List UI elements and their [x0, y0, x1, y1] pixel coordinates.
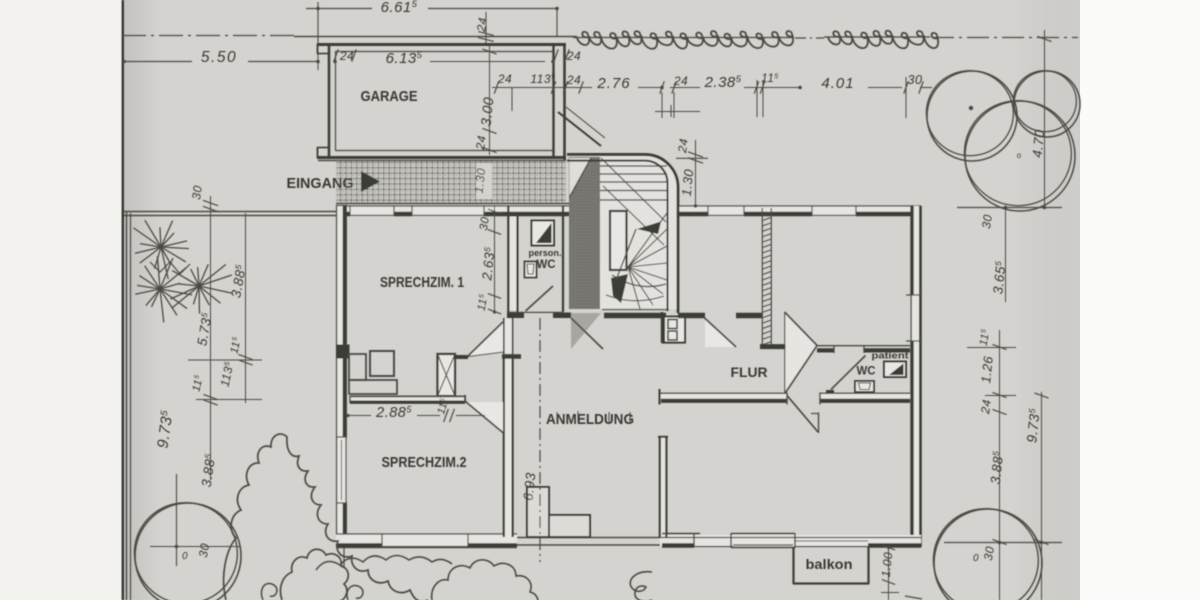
svg-text:EINGANG: EINGANG [287, 175, 354, 192]
svg-text:5.50: 5.50 [201, 49, 237, 66]
svg-text:30: 30 [478, 216, 492, 231]
svg-text:30: 30 [189, 184, 205, 200]
svg-text:24: 24 [673, 74, 688, 88]
svg-text:24: 24 [497, 72, 512, 86]
svg-text:o: o [1017, 151, 1022, 160]
svg-text:30: 30 [196, 542, 212, 559]
svg-text:30: 30 [908, 73, 923, 87]
svg-text:6.93: 6.93 [521, 472, 539, 502]
svg-text:0: 0 [973, 553, 979, 564]
svg-text:WC: WC [537, 257, 556, 271]
svg-text:WC: WC [857, 364, 876, 378]
svg-text:1.30: 1.30 [472, 167, 489, 194]
svg-text:30: 30 [979, 213, 995, 229]
svg-text:1.26: 1.26 [978, 355, 996, 384]
svg-text:ANMELDUNG: ANMELDUNG [546, 411, 634, 428]
svg-text:2.76: 2.76 [596, 75, 630, 92]
svg-text:4.01: 4.01 [821, 75, 854, 92]
svg-text:SPRECHZIM.2: SPRECHZIM.2 [382, 454, 467, 471]
svg-text:balkon: balkon [806, 557, 853, 572]
svg-text:24: 24 [978, 398, 994, 415]
svg-text:30: 30 [981, 545, 997, 562]
svg-text:0: 0 [182, 551, 188, 562]
svg-text:24: 24 [566, 73, 581, 87]
svg-text:FLUR: FLUR [731, 364, 768, 380]
svg-text:GARAGE: GARAGE [361, 88, 418, 105]
svg-text:SPRECHZIM. 1: SPRECHZIM. 1 [380, 274, 464, 291]
svg-text:3.00: 3.00 [478, 96, 497, 127]
svg-text:1.00: 1.00 [879, 551, 896, 578]
svg-text:patient: patient [872, 351, 909, 361]
svg-text:24: 24 [474, 16, 490, 33]
svg-text:1.30: 1.30 [679, 168, 697, 197]
